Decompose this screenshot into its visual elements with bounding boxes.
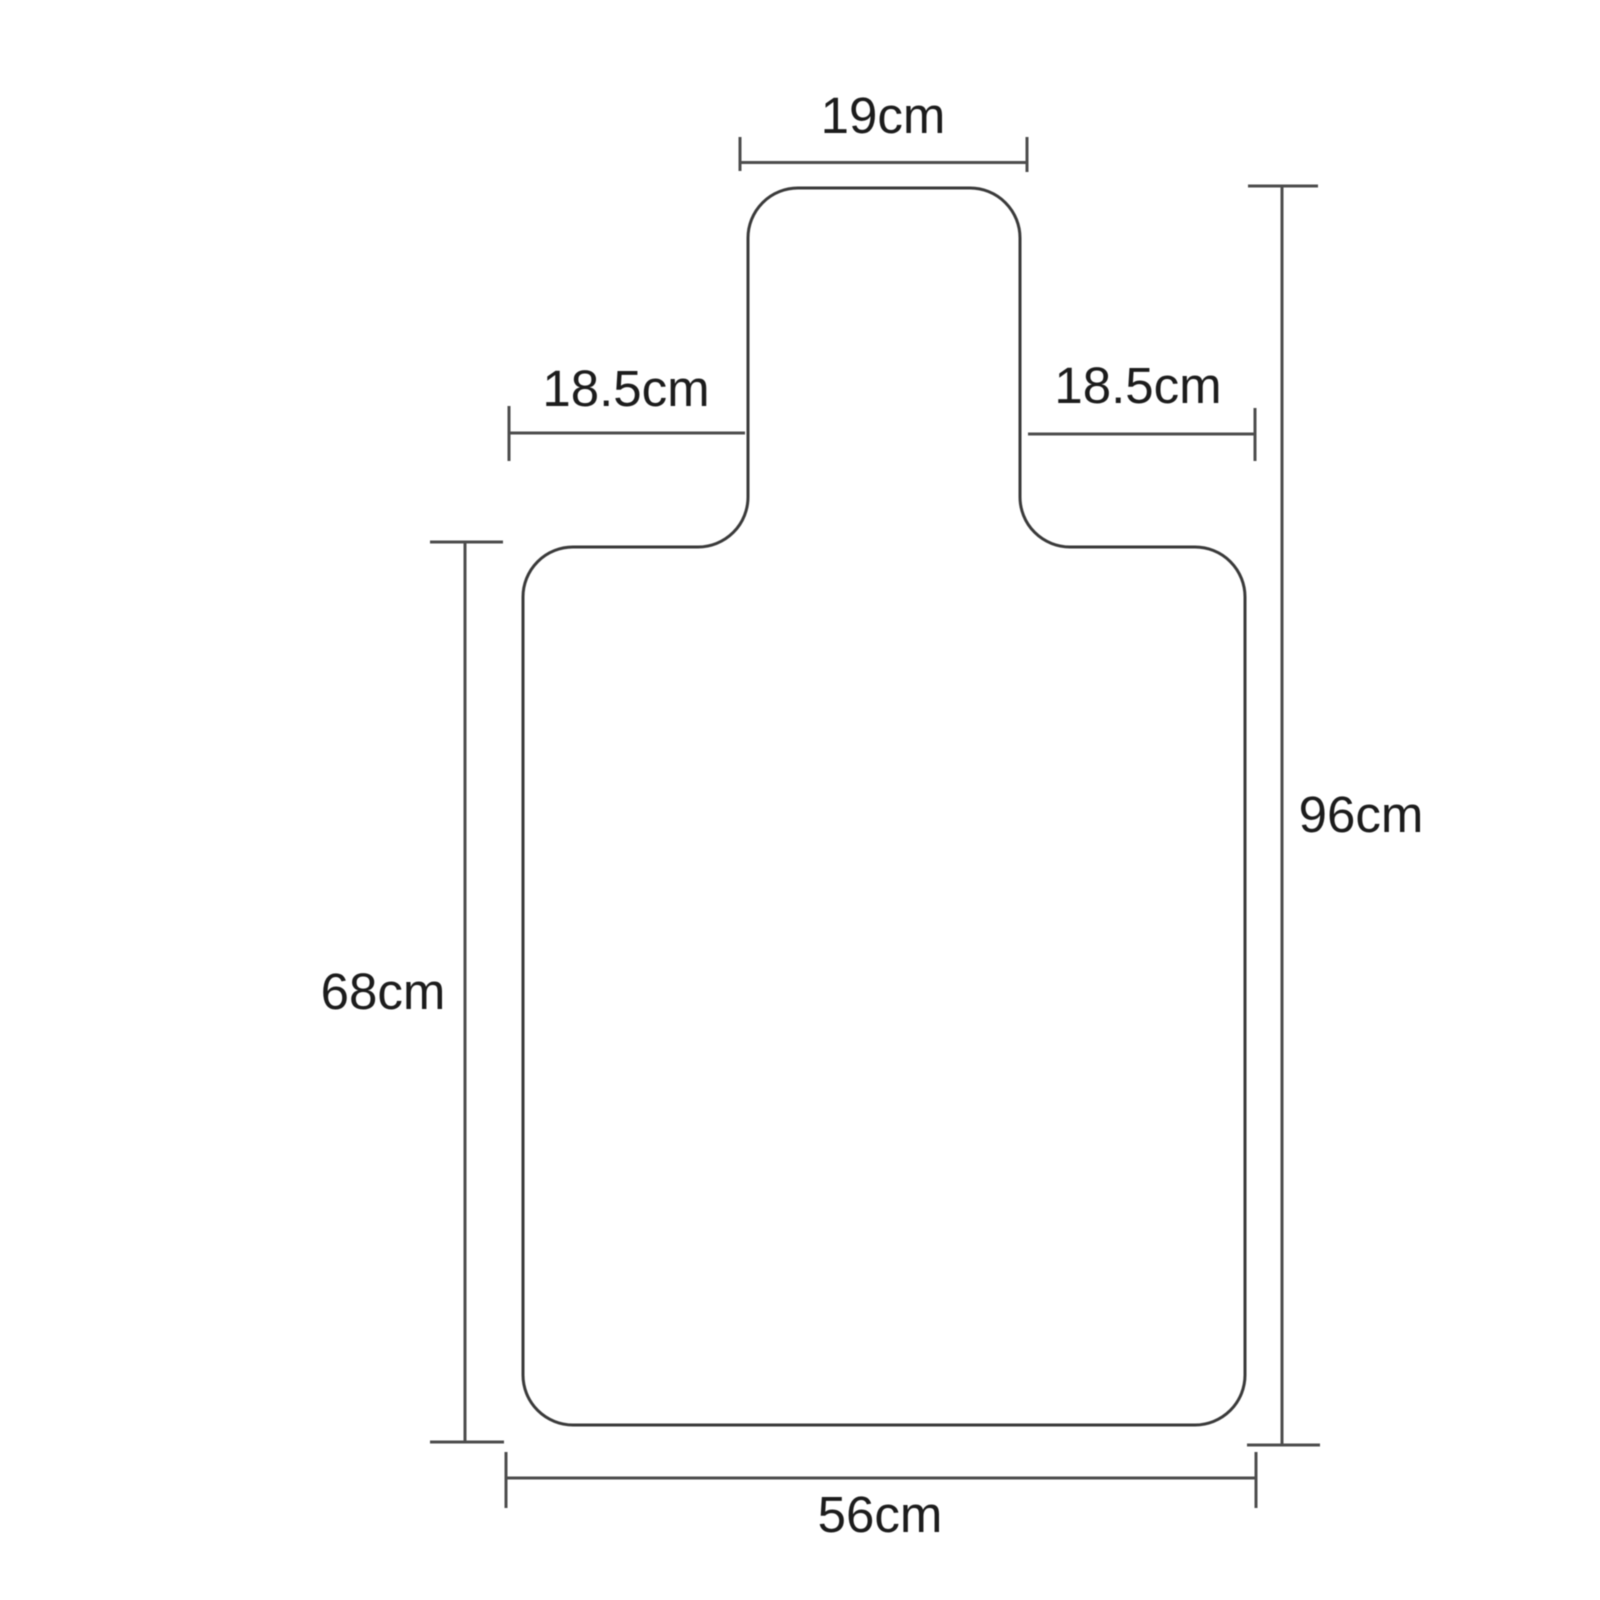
svg-text:68cm: 68cm <box>321 963 446 1020</box>
svg-text:96cm: 96cm <box>1299 786 1424 843</box>
svg-text:18.5cm: 18.5cm <box>1054 357 1221 414</box>
svg-text:19cm: 19cm <box>821 87 946 144</box>
svg-text:56cm: 56cm <box>818 1486 943 1543</box>
svg-text:18.5cm: 18.5cm <box>542 360 709 417</box>
